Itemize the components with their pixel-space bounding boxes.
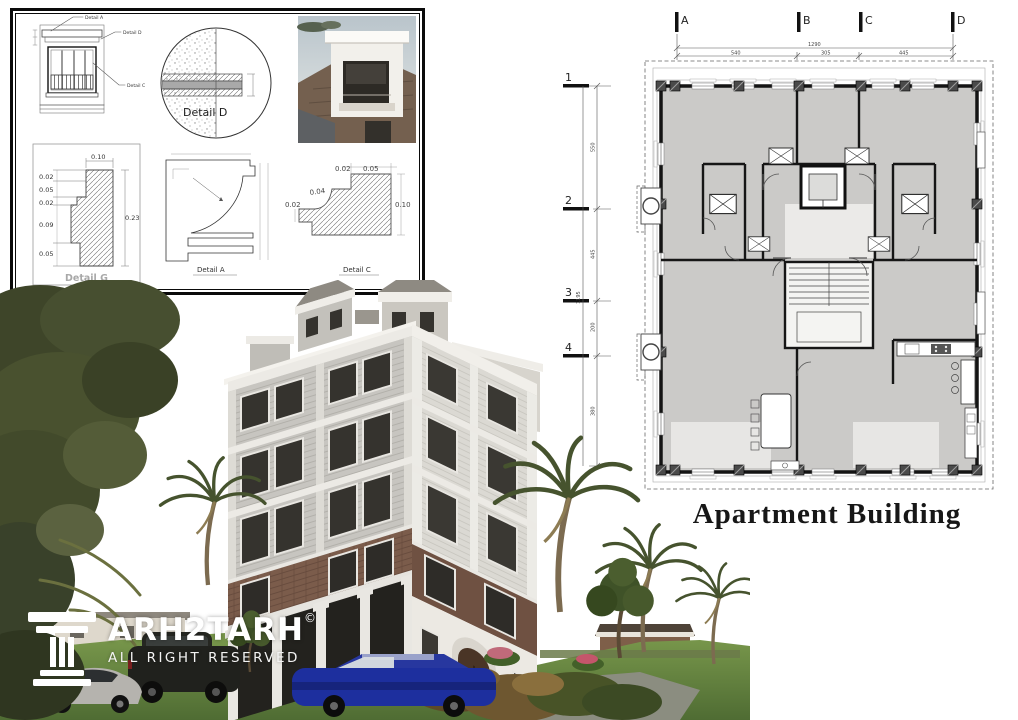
top-dim-seg2: 305 xyxy=(821,51,831,57)
column-logo-icon xyxy=(28,612,96,690)
detail-c-label: Detail C xyxy=(343,266,371,274)
detail-c-drawing: 0.02 0.05 0.04 0.02 0.10 Detail C xyxy=(285,163,411,275)
grid-col-d: D xyxy=(957,14,965,27)
top-dim-seg3: 445 xyxy=(899,51,909,57)
balcony-left-1 xyxy=(641,188,661,224)
detail-c-dim-curve: 0.04 xyxy=(309,187,326,197)
detail-c-dim-topright: 0.05 xyxy=(363,165,379,173)
watermark-logo: ARH2TARH© ALL RIGHT RESERVED xyxy=(28,612,317,690)
dormer-photo-inset xyxy=(297,16,416,143)
detail-g-dim-4: 0.09 xyxy=(39,221,53,229)
left-dim-seg2: 445 xyxy=(591,249,597,259)
construction-details-panel: Detail A Detail D Detail C Detail D xyxy=(10,8,425,295)
detail-g-dim-1: 0.02 xyxy=(39,173,53,181)
grid-row-1: 1 xyxy=(565,71,572,84)
detail-c-dim-right: 0.10 xyxy=(395,201,411,209)
detail-g-drawing: 0.10 0.23 0.02 0.05 0.02 0.09 0.05 Detai… xyxy=(33,144,140,285)
top-dim-total: 1290 xyxy=(808,42,821,48)
detail-g-dim-2: 0.05 xyxy=(39,186,53,194)
detail-g-dim-top: 0.10 xyxy=(91,153,105,161)
top-dim-seg1: 540 xyxy=(731,51,741,57)
detail-c-dim-left: 0.02 xyxy=(285,201,301,209)
callout-detail-c: Detail C xyxy=(127,83,145,89)
hedge xyxy=(540,650,740,658)
brand-name-text: ARH2TARH xyxy=(108,612,304,648)
left-dim-seg1: 550 xyxy=(591,142,597,152)
brand-tagline: ALL RIGHT RESERVED xyxy=(108,650,317,666)
detail-d-label: Detail D xyxy=(183,106,227,119)
detail-a-drawing: Detail A xyxy=(166,154,268,275)
grid-col-a: A xyxy=(681,14,689,27)
brand-name: ARH2TARH© xyxy=(108,612,317,647)
grid-col-c: C xyxy=(865,14,873,27)
callout-detail-d: Detail D xyxy=(123,30,142,36)
detail-g-dim-3: 0.02 xyxy=(39,199,53,207)
callout-detail-a: Detail A xyxy=(85,15,104,21)
detail-a-label: Detail A xyxy=(197,266,225,274)
detail-g-dim-right: 0.23 xyxy=(125,214,139,222)
detail-g-dim-5: 0.05 xyxy=(39,250,53,258)
grid-col-b: B xyxy=(803,14,811,27)
detail-d-drawing: Detail D xyxy=(161,28,271,138)
grid-row-2: 2 xyxy=(565,194,572,207)
detail-c-dim-topleft: 0.02 xyxy=(335,165,351,173)
window-elevation-drawing: Detail A Detail D Detail C xyxy=(33,15,145,113)
grid-columns: A B C D xyxy=(675,12,965,32)
copyright-symbol: © xyxy=(304,611,317,625)
details-drawing-svg: Detail A Detail D Detail C Detail D xyxy=(13,11,422,292)
top-dimensions: 1290 540 305 445 xyxy=(674,34,956,60)
